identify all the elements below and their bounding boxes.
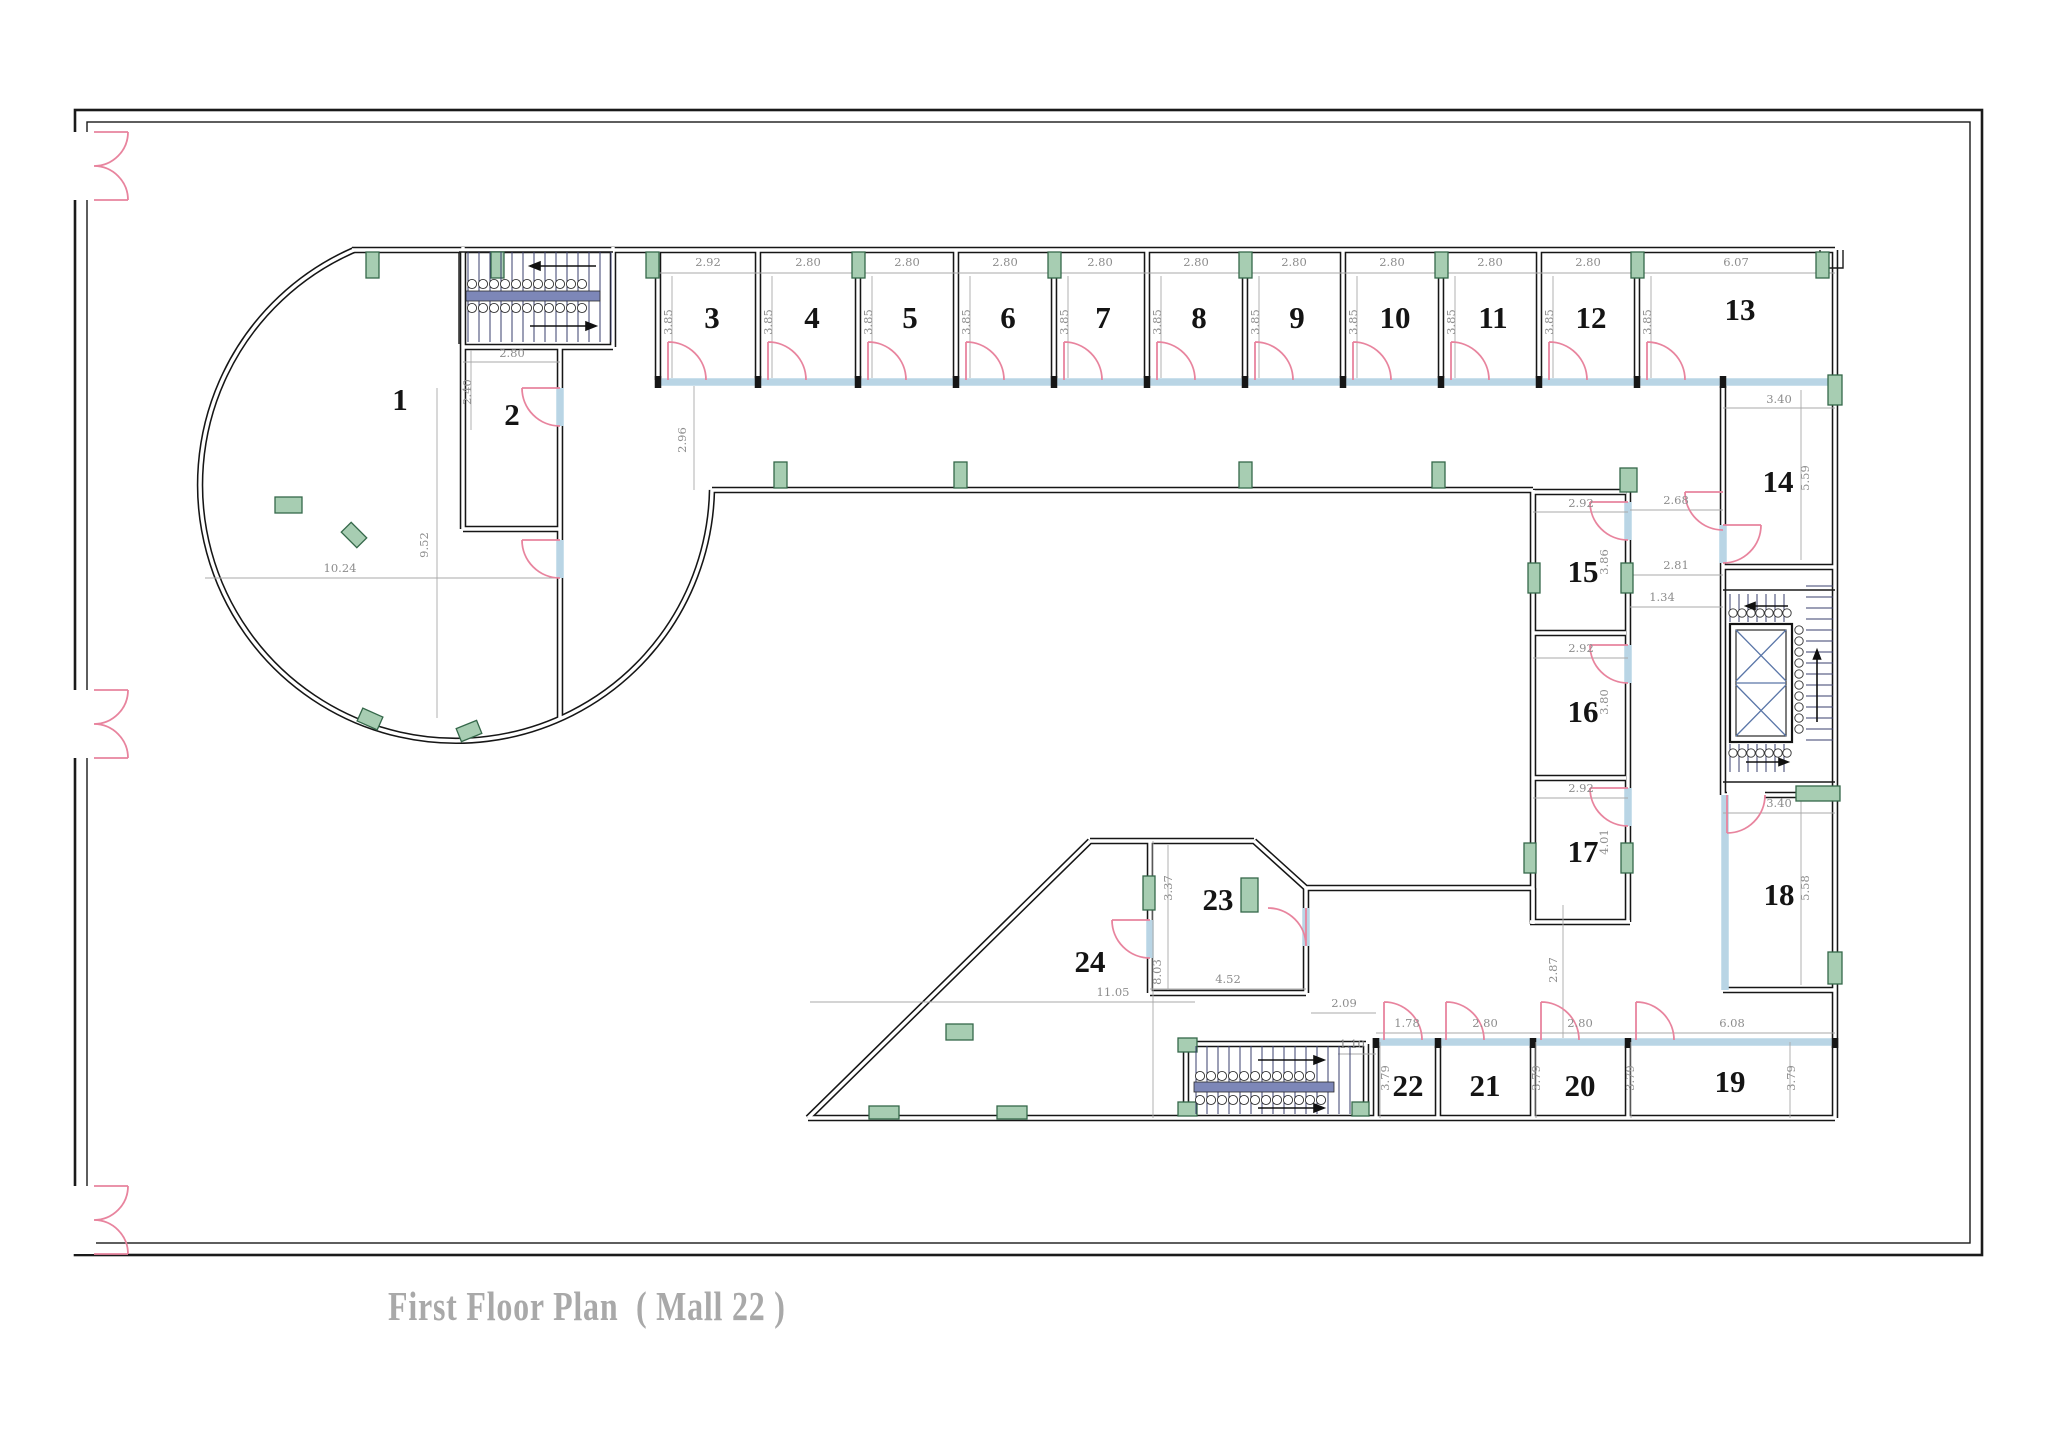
room-label-2: 2: [504, 397, 520, 432]
dim-2.92: 2.92: [695, 255, 721, 269]
dim-3.40: 3.40: [1766, 796, 1792, 810]
dim-3.85: 3.85: [1542, 309, 1556, 335]
dim-3.85: 3.85: [761, 309, 775, 335]
dim-3.86: 3.86: [1597, 549, 1611, 575]
sheet-frame: [75, 110, 1982, 1255]
room-label-22: 22: [1393, 1068, 1424, 1103]
dim-6.07: 6.07: [1723, 255, 1749, 269]
stair-handrail: [466, 291, 600, 301]
walls: [200, 247, 1835, 1118]
dim-2.40: 2.40: [460, 379, 474, 405]
dim-11.05: 11.05: [1097, 985, 1130, 999]
dim-3.85: 3.85: [1444, 309, 1458, 335]
dim-3.85: 3.85: [861, 309, 875, 335]
room-label-23: 23: [1203, 882, 1234, 917]
dim-3.79: 3.79: [1529, 1065, 1543, 1091]
elevator-core: [1729, 586, 1833, 772]
dim-2.80: 2.80: [1575, 255, 1601, 269]
room-label-16: 16: [1568, 694, 1599, 729]
room-label-15: 15: [1568, 554, 1599, 589]
dim-2.80: 2.80: [894, 255, 920, 269]
room-label-19: 19: [1715, 1064, 1746, 1099]
dim-1.34: 1.34: [1649, 590, 1675, 604]
room-label-12: 12: [1576, 300, 1607, 335]
dim-2.80: 2.80: [992, 255, 1018, 269]
floor-plan-drawing: 2.922.802.802.802.802.802.802.802.802.80…: [0, 0, 2048, 1448]
doors: [94, 132, 1765, 1254]
dim-3.37: 3.37: [1161, 875, 1175, 901]
dim-5.59: 5.59: [1798, 465, 1812, 491]
walls: [200, 247, 1835, 1118]
room-label-14: 14: [1763, 464, 1794, 499]
room-label-17: 17: [1568, 834, 1599, 869]
dim-3.85: 3.85: [661, 309, 675, 335]
floor-plan-sheet: 2.922.802.802.802.802.802.802.802.802.80…: [0, 0, 2048, 1448]
room-label-3: 3: [704, 300, 720, 335]
dim-2.80: 2.80: [1477, 255, 1503, 269]
dim-1.10: 1.10: [1339, 1037, 1365, 1051]
dim-3.85: 3.85: [1150, 309, 1164, 335]
room-label-21: 21: [1470, 1068, 1501, 1103]
room-label-9: 9: [1289, 300, 1305, 335]
dim-2.80: 2.80: [1379, 255, 1405, 269]
dim-5.58: 5.58: [1798, 875, 1812, 901]
staircase-bottom: [1194, 1046, 1350, 1114]
dim-2.92: 2.92: [1568, 781, 1594, 795]
dim-4.01: 4.01: [1597, 829, 1611, 855]
dim-4.52: 4.52: [1215, 972, 1241, 986]
dim-2.92: 2.92: [1568, 641, 1594, 655]
sills: [560, 382, 1835, 1042]
room-label-13: 13: [1725, 292, 1756, 327]
dim-2.96: 2.96: [675, 427, 689, 453]
dim-9.52: 9.52: [417, 532, 431, 558]
dim-2.68: 2.68: [1663, 493, 1689, 507]
dim-2.92: 2.92: [1568, 496, 1594, 510]
dim-2.87: 2.87: [1546, 957, 1560, 983]
dim-3.85: 3.85: [1346, 309, 1360, 335]
dim-3.80: 3.80: [1597, 689, 1611, 715]
room-label-11: 11: [1478, 300, 1507, 335]
dim-2.80: 2.80: [1183, 255, 1209, 269]
dim-2.80: 2.80: [1087, 255, 1113, 269]
room-label-6: 6: [1000, 300, 1016, 335]
room-label-4: 4: [804, 300, 820, 335]
room-label-18: 18: [1764, 877, 1795, 912]
dim-6.08: 6.08: [1719, 1016, 1745, 1030]
room-label-7: 7: [1095, 300, 1111, 335]
dim-3.85: 3.85: [959, 309, 973, 335]
dim-3.40: 3.40: [1766, 392, 1792, 406]
room-label-8: 8: [1191, 300, 1207, 335]
dim-2.80: 2.80: [1472, 1016, 1498, 1030]
drawing-title: First Floor Plan ( Mall 22 ): [388, 1282, 786, 1330]
room-label-20: 20: [1565, 1068, 1596, 1103]
dim-3.79: 3.79: [1784, 1065, 1798, 1091]
room-label-5: 5: [902, 300, 918, 335]
dim-2.81: 2.81: [1663, 558, 1689, 572]
room-label-10: 10: [1380, 300, 1411, 335]
room-label-1: 1: [392, 382, 408, 417]
dim-8.03: 8.03: [1150, 959, 1164, 985]
frame-door-gaps: [66, 132, 96, 1254]
stair-handrail: [1194, 1082, 1334, 1092]
wall-hall-arc: [200, 250, 712, 741]
dim-3.85: 3.85: [1057, 309, 1071, 335]
dim-2.80: 2.80: [795, 255, 821, 269]
dim-3.85: 3.85: [1640, 309, 1654, 335]
dim-3.79: 3.79: [1378, 1065, 1392, 1091]
dim-2.80: 2.80: [499, 346, 525, 360]
dim-2.09: 2.09: [1331, 996, 1357, 1010]
room-label-24: 24: [1075, 944, 1106, 979]
dim-3.79: 3.79: [1623, 1065, 1637, 1091]
dim-2.80: 2.80: [1281, 255, 1307, 269]
dim-1.78: 1.78: [1394, 1016, 1420, 1030]
staircase-top: [466, 252, 611, 342]
dim-3.85: 3.85: [1248, 309, 1262, 335]
dim-10.24: 10.24: [324, 561, 357, 575]
dim-2.80: 2.80: [1567, 1016, 1593, 1030]
